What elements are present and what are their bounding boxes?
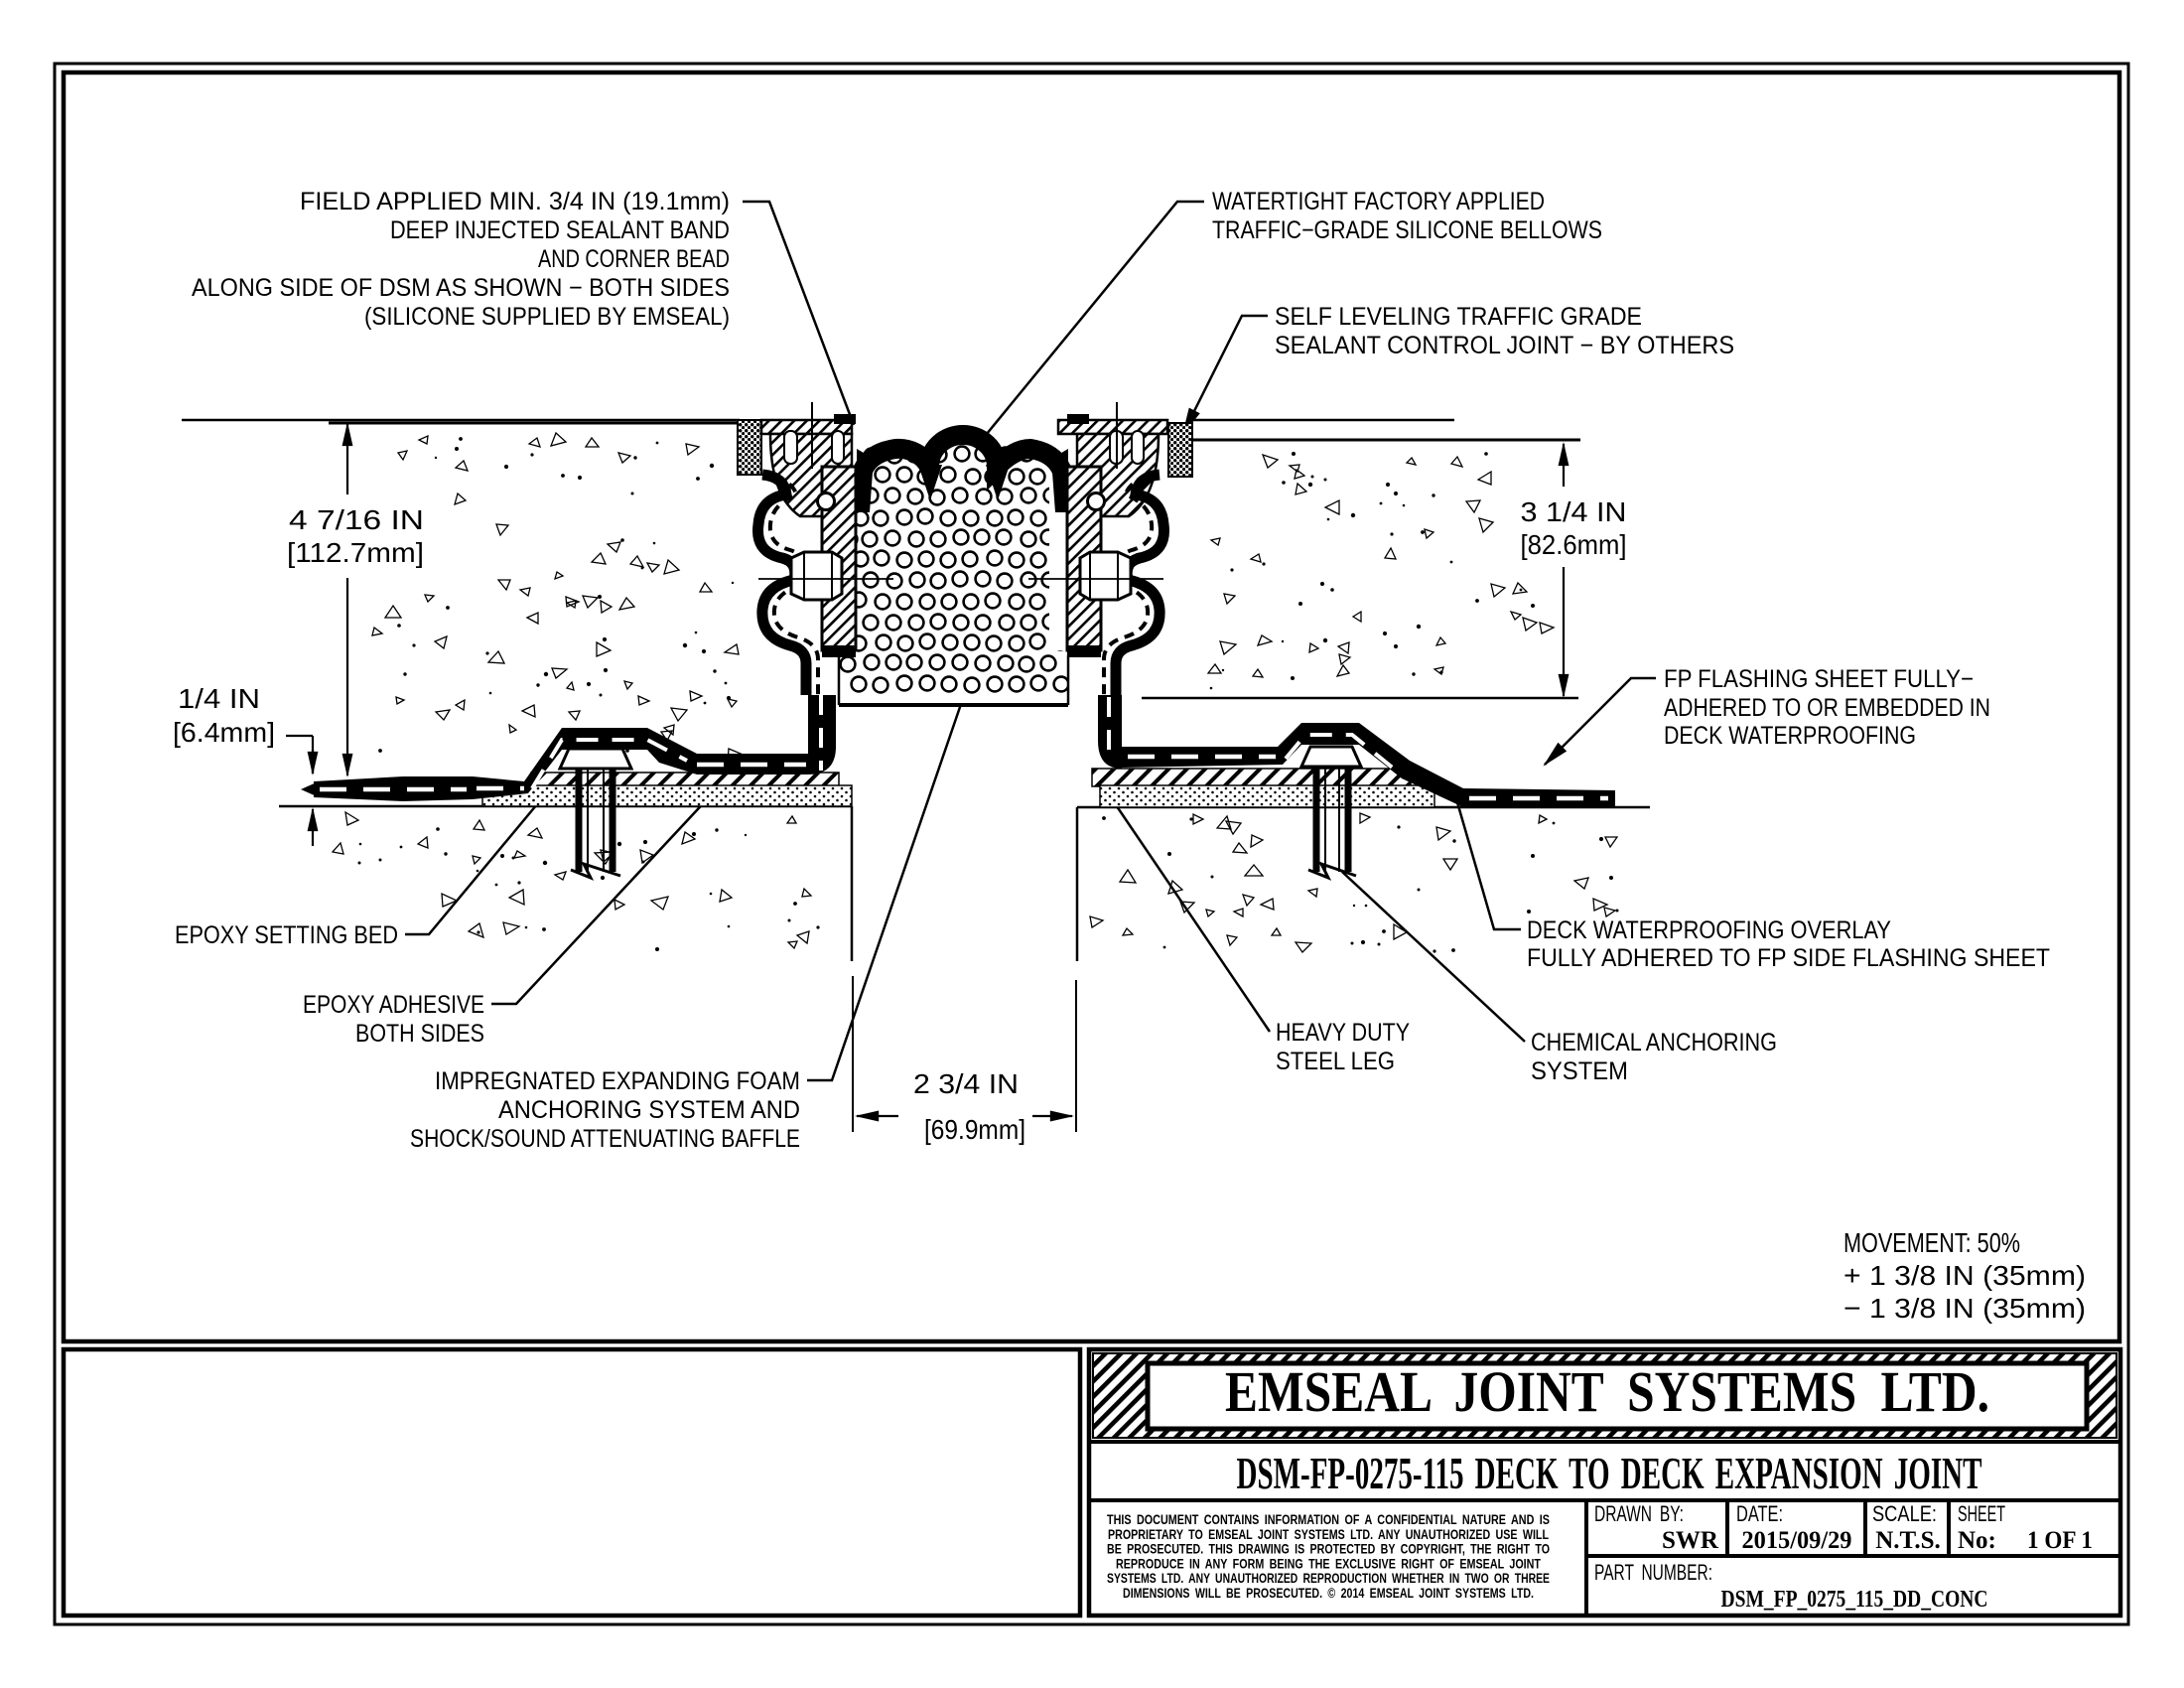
svg-text:EMSEAL JOINT SYSTEMS LTD.: EMSEAL JOINT SYSTEMS LTD.: [1225, 1359, 1989, 1424]
svg-text:HEAVY DUTY: HEAVY DUTY: [1276, 1019, 1410, 1047]
svg-text:THIS DOCUMENT CONTAINS INFORMA: THIS DOCUMENT CONTAINS INFORMATION OF A …: [1107, 1512, 1550, 1527]
svg-text:PROPRIETARY TO EMSEAL JOINT SY: PROPRIETARY TO EMSEAL JOINT SYSTEMS LTD.…: [1108, 1527, 1549, 1542]
svg-text:[69.9mm]: [69.9mm]: [924, 1114, 1025, 1145]
svg-text:EPOXY ADHESIVE: EPOXY ADHESIVE: [303, 991, 484, 1019]
svg-text:FIELD APPLIED MIN. 3/4 IN (19.: FIELD APPLIED MIN. 3/4 IN (19.1mm): [300, 188, 730, 215]
svg-text:REPRODUCE IN ANY FORM BEING TH: REPRODUCE IN ANY FORM BEING THE EXCLUSIV…: [1116, 1556, 1542, 1571]
svg-text:[112.7mm]: [112.7mm]: [287, 537, 424, 568]
svg-text:BOTH SIDES: BOTH SIDES: [355, 1020, 484, 1048]
svg-text:DSM_FP_0275_115_DD_CONC: DSM_FP_0275_115_DD_CONC: [1721, 1587, 1988, 1613]
svg-text:SCALE:: SCALE:: [1872, 1501, 1937, 1526]
svg-text:SWR: SWR: [1662, 1527, 1719, 1554]
svg-text:ADHERED TO OR EMBEDDED IN: ADHERED TO OR EMBEDDED IN: [1664, 694, 1990, 722]
svg-text:CHEMICAL ANCHORING: CHEMICAL ANCHORING: [1531, 1029, 1777, 1056]
svg-text:FP FLASHING SHEET FULLY−: FP FLASHING SHEET FULLY−: [1664, 665, 1974, 693]
svg-text:SELF LEVELING TRAFFIC GRADE: SELF LEVELING TRAFFIC GRADE: [1275, 303, 1642, 331]
svg-text:WATERTIGHT FACTORY APPLIED: WATERTIGHT FACTORY APPLIED: [1212, 188, 1545, 215]
svg-text:N.T.S.: N.T.S.: [1875, 1527, 1941, 1554]
svg-text:− 1 3/8 IN (35mm): − 1 3/8 IN (35mm): [1843, 1293, 2086, 1324]
svg-text:2015/09/29: 2015/09/29: [1742, 1527, 1852, 1554]
svg-text:2 3/4 IN: 2 3/4 IN: [913, 1068, 1019, 1099]
svg-text:4 7/16 IN: 4 7/16 IN: [289, 504, 424, 535]
svg-text:DEEP INJECTED SEALANT BAND: DEEP INJECTED SEALANT BAND: [390, 216, 730, 244]
svg-text:EPOXY SETTING BED: EPOXY SETTING BED: [175, 921, 398, 949]
svg-text:SYSTEM: SYSTEM: [1531, 1057, 1628, 1085]
svg-text:DECK WATERPROOFING: DECK WATERPROOFING: [1664, 722, 1916, 750]
svg-text:MOVEMENT: 50%: MOVEMENT: 50%: [1843, 1227, 2020, 1258]
svg-text:DSM-FP-0275-115 DECK TO DECK E: DSM-FP-0275-115 DECK TO DECK EXPANSION J…: [1237, 1449, 1982, 1498]
svg-text:BE PROSECUTED. THIS DRAWING IS: BE PROSECUTED. THIS DRAWING IS PROTECTED…: [1107, 1542, 1550, 1557]
svg-text:SHOCK/SOUND ATTENUATING BAFFLE: SHOCK/SOUND ATTENUATING BAFFLE: [410, 1125, 800, 1153]
svg-text:DIMENSIONS WILL BE PROSECUTED.: DIMENSIONS WILL BE PROSECUTED. © 2014 EM…: [1123, 1586, 1534, 1601]
svg-text:IMPREGNATED EXPANDING FOAM: IMPREGNATED EXPANDING FOAM: [435, 1067, 800, 1095]
svg-text:ALONG SIDE OF DSM AS SHOWN − B: ALONG SIDE OF DSM AS SHOWN − BOTH SIDES: [192, 274, 730, 302]
svg-text:1 OF 1: 1 OF 1: [2027, 1527, 2093, 1554]
svg-text:AND CORNER BEAD: AND CORNER BEAD: [538, 245, 730, 273]
svg-text:3 1/4 IN: 3 1/4 IN: [1521, 496, 1627, 527]
svg-text:DRAWN BY:: DRAWN BY:: [1594, 1501, 1684, 1526]
svg-text:(SILICONE SUPPLIED BY EMSEAL): (SILICONE SUPPLIED BY EMSEAL): [364, 303, 730, 331]
svg-text:No:: No:: [1958, 1527, 1996, 1554]
svg-text:TRAFFIC−GRADE SILICONE BELLOWS: TRAFFIC−GRADE SILICONE BELLOWS: [1212, 216, 1602, 244]
svg-text:PART NUMBER:: PART NUMBER:: [1594, 1560, 1712, 1585]
svg-text:SYSTEMS LTD. ANY UNAUTHORIZED: SYSTEMS LTD. ANY UNAUTHORIZED REPRODUCTI…: [1107, 1571, 1550, 1586]
svg-text:[82.6mm]: [82.6mm]: [1521, 529, 1627, 560]
svg-text:SEALANT CONTROL JOINT − BY OTH: SEALANT CONTROL JOINT − BY OTHERS: [1275, 332, 1734, 359]
svg-text:[6.4mm]: [6.4mm]: [173, 717, 275, 748]
svg-text:FULLY ADHERED TO FP SIDE FLASH: FULLY ADHERED TO FP SIDE FLASHING SHEET: [1527, 944, 2050, 972]
svg-text:ANCHORING SYSTEM AND: ANCHORING SYSTEM AND: [498, 1096, 800, 1124]
svg-text:STEEL LEG: STEEL LEG: [1276, 1048, 1395, 1075]
svg-text:DATE:: DATE:: [1736, 1501, 1783, 1526]
svg-text:+ 1 3/8 IN (35mm): + 1 3/8 IN (35mm): [1843, 1260, 2086, 1291]
svg-text:1/4 IN: 1/4 IN: [178, 683, 260, 714]
svg-text:SHEET: SHEET: [1958, 1501, 2005, 1526]
